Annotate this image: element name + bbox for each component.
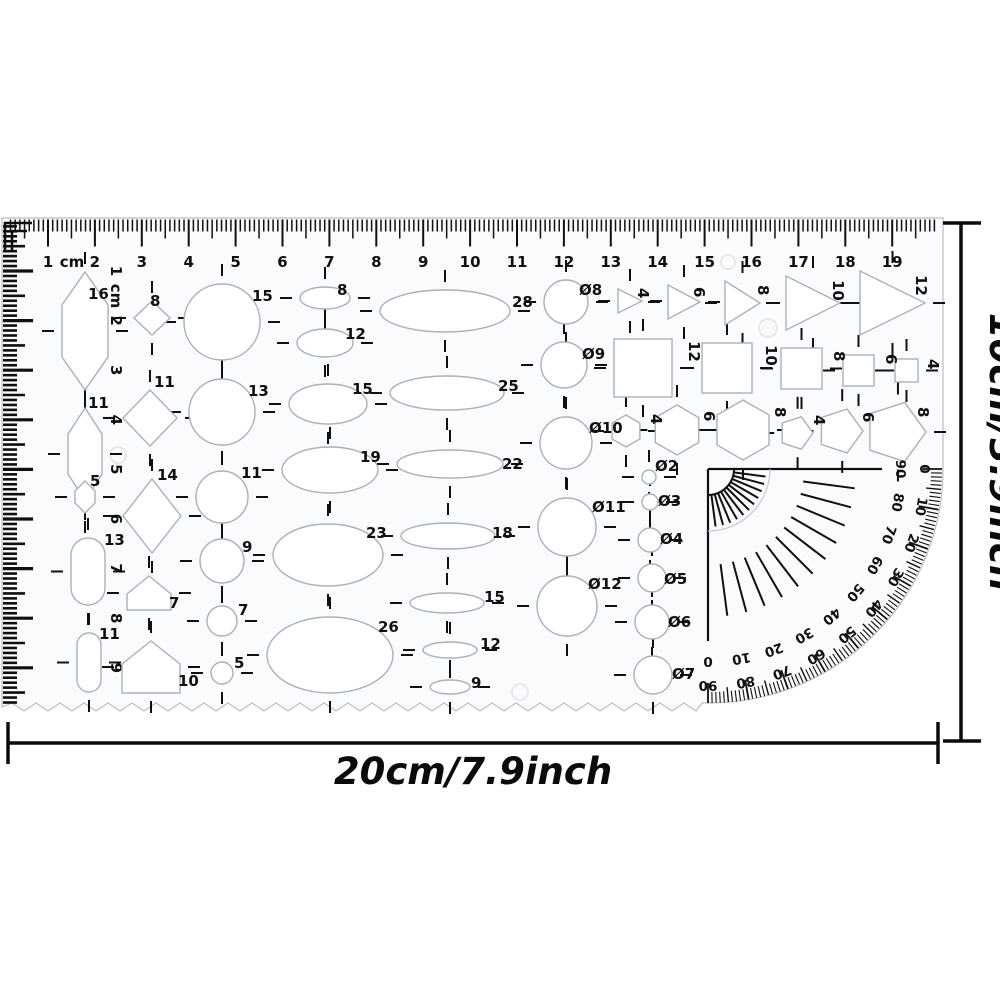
top-ruler-number: 11 <box>507 253 528 271</box>
size-label: Ø9 <box>582 345 605 363</box>
size-label: 11 <box>154 373 175 391</box>
top-ruler-number: 17 <box>788 253 809 271</box>
size-label: 8 <box>754 285 772 295</box>
left-ruler-number: 2 <box>107 315 125 325</box>
size-label: 14 <box>157 466 178 484</box>
size-label: 9 <box>471 674 481 692</box>
size-label: 6 <box>700 411 718 421</box>
circle-cutout <box>538 498 596 556</box>
square-cutout <box>702 343 752 393</box>
left-ruler-number: 1 <box>107 266 125 276</box>
ellipse-cutout <box>380 290 510 332</box>
drafting-template-ruler: 1234567891011121314151617181912345678916… <box>0 0 1000 1000</box>
circle-cutout <box>211 662 233 684</box>
size-label: 9 <box>242 538 252 556</box>
size-label: 8 <box>771 407 789 417</box>
size-label: 18 <box>492 524 513 542</box>
size-label: 16 <box>88 285 109 303</box>
size-label: 12 <box>480 635 501 653</box>
size-label: 28 <box>512 293 533 311</box>
ellipse-cutout <box>401 523 495 549</box>
stadium-cutout <box>71 538 105 605</box>
top-ruler-number: 1 <box>43 253 53 271</box>
size-label: 6 <box>690 287 708 297</box>
top-ruler-number: 12 <box>553 253 574 271</box>
size-label: 7 <box>169 594 179 612</box>
left-ruler-number: 3 <box>107 365 125 375</box>
size-label: Ø11 <box>592 498 626 516</box>
circle-cutout <box>642 494 658 510</box>
protractor-degree-label: 80 <box>888 492 907 513</box>
size-label: 11 <box>88 394 109 412</box>
size-label: 4 <box>810 415 828 425</box>
product-photo: 1234567891011121314151617181912345678916… <box>0 0 1000 1000</box>
top-ruler-number: 3 <box>137 253 147 271</box>
circle-cutout <box>207 606 237 636</box>
top-ruler-number: 8 <box>371 253 381 271</box>
left-ruler-number: 8 <box>107 613 125 623</box>
top-ruler-number: 9 <box>418 253 428 271</box>
size-label: Ø12 <box>588 575 622 593</box>
top-ruler-number: 16 <box>741 253 762 271</box>
size-label: 15 <box>484 588 505 606</box>
size-label: 8 <box>914 407 932 417</box>
protractor-degree-label: 90 <box>892 460 908 479</box>
template-body: 1234567891011121314151617181912345678916… <box>2 218 946 714</box>
stadium-cutout <box>77 633 101 692</box>
left-ruler-number: 5 <box>107 464 125 474</box>
circle-cutout <box>200 539 244 583</box>
size-label: 10 <box>762 345 780 366</box>
size-label: Ø4 <box>660 530 683 548</box>
circle-cutout <box>638 528 662 552</box>
size-label: 15 <box>252 287 273 305</box>
square-cutout <box>781 348 822 389</box>
circle-cutout <box>634 656 672 694</box>
size-label: 4 <box>924 359 942 369</box>
top-ruler-number: 10 <box>460 253 481 271</box>
size-label: 8 <box>337 281 347 299</box>
top-ruler-number: 4 <box>183 253 193 271</box>
top-ruler-number: 6 <box>277 253 287 271</box>
size-label: Ø3 <box>658 492 681 510</box>
protractor-degree-label: 10 <box>731 649 752 668</box>
ellipse-cutout <box>397 450 503 478</box>
size-label: 12 <box>685 341 703 362</box>
square-cutout <box>614 339 672 397</box>
size-label: Ø5 <box>664 570 687 588</box>
circle-cutout <box>184 284 260 360</box>
size-label: 4 <box>647 414 665 424</box>
size-label: 8 <box>830 351 848 361</box>
top-ruler-number: 14 <box>647 253 668 271</box>
size-label: 11 <box>241 464 262 482</box>
size-label: Ø7 <box>672 665 695 683</box>
size-label: 8 <box>150 292 160 310</box>
size-label: 5 <box>234 654 244 672</box>
circle-cutout <box>635 605 669 639</box>
size-label: 6 <box>859 412 877 422</box>
left-ruler-number: 4 <box>107 415 125 425</box>
top-ruler-number: 5 <box>230 253 240 271</box>
circle-cutout <box>638 564 666 592</box>
size-label: 6 <box>882 354 900 364</box>
top-ruler-number: 2 <box>90 253 100 271</box>
size-label: 25 <box>498 377 519 395</box>
width-dimension-label: 20cm/7.9inch <box>334 750 612 793</box>
size-label: 10 <box>829 280 847 301</box>
size-label: Ø2 <box>655 457 678 475</box>
size-label: 13 <box>104 531 125 549</box>
size-label: 15 <box>352 380 373 398</box>
ellipse-cutout <box>390 376 504 410</box>
top-ruler-unit-label: cm <box>60 253 85 271</box>
size-label: 13 <box>248 382 269 400</box>
top-ruler-number: 13 <box>600 253 621 271</box>
size-label: 11 <box>99 625 120 643</box>
size-label: 22 <box>502 455 523 473</box>
size-label: 12 <box>345 325 366 343</box>
size-label: 23 <box>366 524 387 542</box>
protractor-degree-label: 0 <box>703 653 712 669</box>
left-ruler-unit-label: cm <box>107 284 125 309</box>
circle-cutout <box>642 470 656 484</box>
top-ruler-number: 18 <box>835 253 856 271</box>
ellipse-cutout <box>410 593 484 613</box>
size-label: 5 <box>90 472 100 490</box>
circle-cutout <box>189 379 255 445</box>
size-label: Ø8 <box>579 281 602 299</box>
ellipse-cutout <box>267 617 393 693</box>
ellipse-cutout <box>423 642 477 658</box>
top-ruler-number: 15 <box>694 253 715 271</box>
size-label: 7 <box>238 601 248 619</box>
ellipse-cutout <box>430 680 470 694</box>
circle-cutout <box>541 342 587 388</box>
size-label: Ø6 <box>668 613 691 631</box>
size-label: 10 <box>178 672 199 690</box>
size-label: Ø10 <box>589 419 623 437</box>
size-label: 26 <box>378 618 399 636</box>
size-label: 12 <box>912 275 930 296</box>
height-dimension-label: 10cm/3.9inch <box>981 313 1000 591</box>
size-label: 19 <box>360 448 381 466</box>
size-label: 4 <box>634 288 652 298</box>
circle-cutout <box>540 417 592 469</box>
